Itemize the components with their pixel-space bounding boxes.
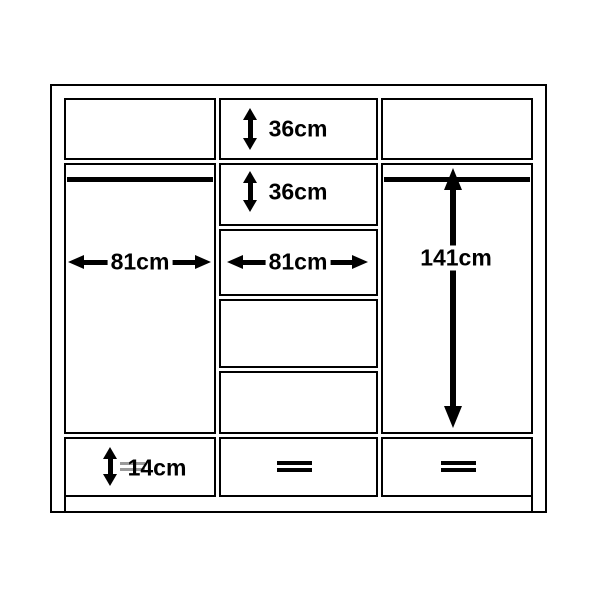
dim-label-left-width: 81cm [108, 250, 173, 275]
drawer-height-arrow-icon [103, 447, 117, 486]
right-side-panel-segment [531, 497, 533, 513]
left-side-panel-segment [64, 497, 66, 513]
left-hanging-section [64, 163, 216, 434]
arrow-right-head [352, 255, 368, 269]
middle-shelf-section-5 [219, 371, 378, 434]
right-hanging-height-arrow-icon [444, 168, 462, 428]
arrow-down-head [444, 406, 462, 428]
middle-drawer-handle-icon [277, 461, 312, 472]
wardrobe-dimension-diagram: 36cm 36cm 81cm 81cm 141cm 14cm [0, 0, 600, 600]
top-shelf-height-arrow-icon [243, 108, 257, 150]
left-hanging-rail [67, 177, 213, 182]
right-top-shelf-section [381, 98, 533, 160]
arrow-shaft [450, 186, 456, 410]
dim-label-second-shelf: 36cm [269, 181, 328, 204]
arrow-down-head [243, 138, 257, 150]
right-drawer-handle-icon [441, 461, 476, 472]
arrow-shaft [248, 118, 253, 140]
arrow-down-head [103, 474, 117, 486]
middle-shelf-section-4 [219, 299, 378, 368]
dim-label-right-height: 141cm [417, 246, 495, 271]
arrow-down-head [243, 200, 257, 212]
arrow-right-head [195, 255, 211, 269]
dim-label-top-shelf: 36cm [269, 118, 328, 141]
dim-label-middle-width: 81cm [266, 250, 331, 275]
arrow-shaft [248, 181, 253, 202]
dim-label-drawer-height: 14cm [128, 457, 187, 480]
second-shelf-height-arrow-icon [243, 171, 257, 212]
left-top-shelf-section [64, 98, 216, 160]
